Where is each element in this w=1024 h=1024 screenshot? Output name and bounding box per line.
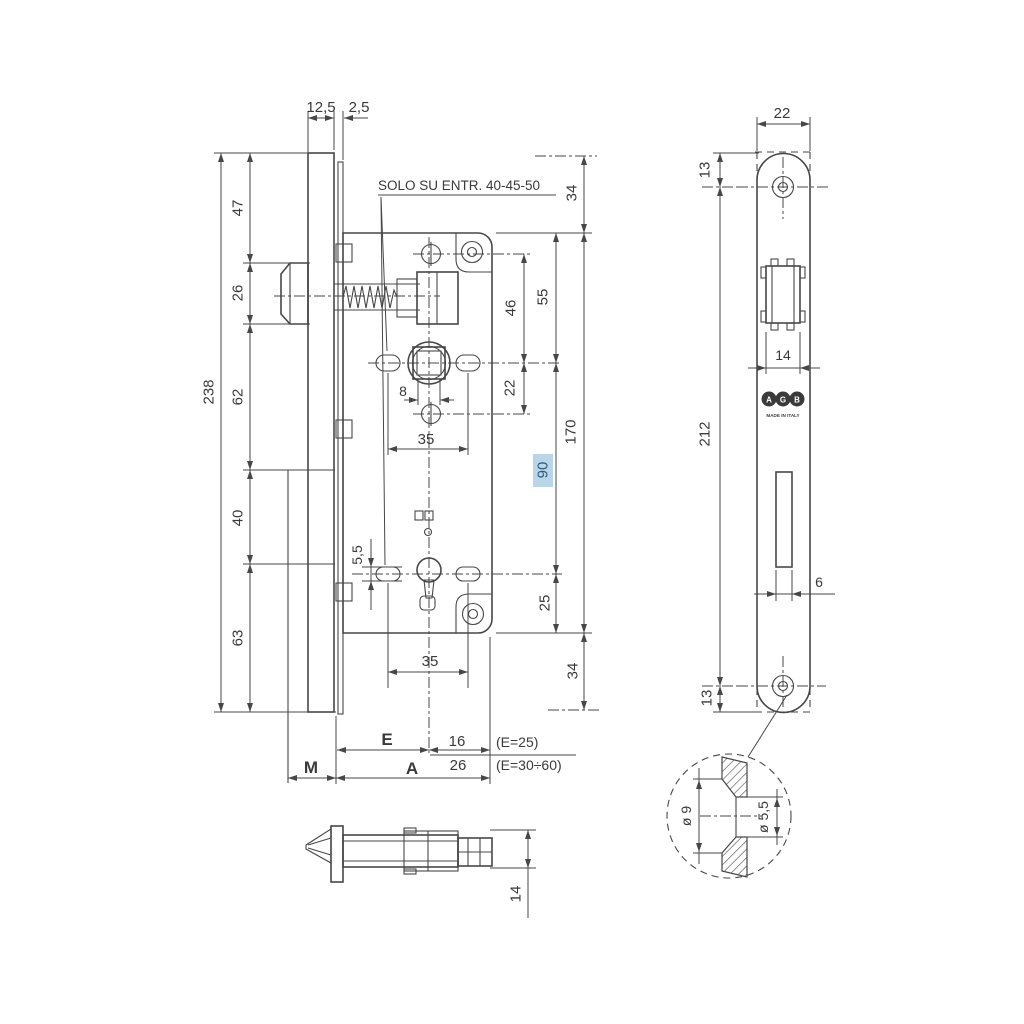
dim-detail-d5-5: ø 5,5	[747, 789, 783, 845]
dim-62-label: 62	[230, 389, 247, 406]
latch-side-view: 14	[306, 826, 536, 918]
dim-width-22: 22	[757, 105, 810, 151]
dim-slot-6-label: 6	[815, 574, 823, 590]
technical-drawing-page: 12,5 2,5 238 47 26 62 40 63	[0, 0, 1024, 1024]
dim-34-top-label: 34	[564, 185, 581, 202]
faceplate-square-corner-option	[755, 152, 812, 712]
latch-tip	[306, 829, 331, 863]
stamp-glyph	[415, 511, 433, 536]
latch-bolt-front	[274, 263, 458, 324]
faceplate-view: 14 A G B MADE IN ITALY 6	[697, 105, 836, 713]
dim-40-label: 40	[230, 510, 247, 527]
dim-35-bottom: 35	[388, 583, 468, 688]
dim-212-label: 212	[697, 421, 714, 446]
dim-35-bottom-label: 35	[422, 653, 439, 670]
faceplate-outline	[757, 154, 810, 713]
dim-47-label: 47	[230, 200, 247, 217]
dim-46-label: 46	[503, 300, 520, 317]
dim-34-bottom-label: 34	[565, 663, 582, 680]
dim-E-label: E	[381, 730, 392, 749]
dim-d9-label: ø 9	[678, 806, 694, 826]
dim-left-chains: 238 47 26 62 40 63	[201, 153, 337, 712]
dim-width-22-label: 22	[774, 105, 791, 122]
dim-faceplate-left-chain: 13 212 13	[697, 153, 760, 712]
dim-square-8: 8	[399, 379, 454, 405]
countersink-detail: ø 9 ø 5,5	[667, 695, 791, 878]
faceplate-edge	[308, 153, 334, 712]
dim-d5-5-label: ø 5,5	[755, 801, 771, 833]
lock-technical-drawing: 12,5 2,5 238 47 26 62 40 63	[0, 0, 1024, 1024]
dim-25-label: 25	[537, 595, 554, 612]
entry-note-label: SOLO SU ENTR. 40-45-50	[378, 178, 540, 193]
corner-hole-top-inner	[468, 248, 477, 257]
faceplate-top-screw-hole	[737, 157, 830, 219]
handle-zone-box	[288, 470, 335, 783]
corner-hole-top	[462, 242, 483, 263]
latch-clip	[404, 831, 458, 871]
made-in-italy-label: MADE IN ITALY	[766, 413, 799, 418]
dim-8-label: 8	[399, 383, 407, 399]
dim-22-label: 22	[502, 380, 519, 397]
faceplate-latch-cutout	[761, 259, 805, 330]
note-e3060-label: (E=30÷60)	[496, 757, 562, 773]
latch-body	[343, 835, 458, 867]
section-hatch-top	[722, 757, 747, 797]
dim-top-offsets: 12,5 2,5	[306, 99, 369, 160]
logo-letter-a: A	[766, 396, 772, 405]
dim-13-bottom-label: 13	[699, 690, 716, 707]
brand-logo: A G B MADE IN ITALY	[762, 392, 805, 419]
faceplate-bottom-screw-hole	[737, 656, 826, 708]
dim-26-label: 26	[230, 285, 247, 302]
dim-12-5-label: 12,5	[306, 99, 335, 116]
logo-letter-b: B	[794, 396, 800, 405]
dim-right-chains: 46 22 55 90 25 34 170 34	[496, 156, 592, 710]
fixing-oval-holes	[376, 355, 480, 581]
dim-slot-6: 6	[754, 570, 835, 601]
detail-leader-line	[748, 695, 787, 757]
dim-A-label: A	[406, 759, 418, 778]
dim-cutout-14-label: 14	[775, 347, 791, 363]
dim-55-label: 55	[535, 289, 552, 306]
assembly-screw-holes	[413, 242, 533, 426]
dim-90-label: 90	[535, 462, 552, 479]
section-hatch-bottom	[722, 837, 747, 877]
dim-63-label: 63	[230, 630, 247, 647]
dim-35-top-label: 35	[418, 431, 435, 448]
deadbolt-slot	[776, 472, 792, 567]
dim-latch-14-label: 14	[508, 886, 525, 903]
dim-5-5-label: 5,5	[349, 545, 365, 565]
front-view: 12,5 2,5 238 47 26 62 40 63	[201, 99, 603, 784]
logo-letter-g: G	[780, 396, 786, 405]
dim-13-top-label: 13	[697, 162, 714, 179]
note-e25-label: (E=25)	[496, 734, 538, 750]
dim-16-label: 16	[449, 733, 466, 750]
dim-170-label: 170	[563, 419, 580, 444]
dim-238-label: 238	[201, 379, 218, 404]
corner-hole-bottom-inner	[469, 610, 478, 619]
latch-flange	[331, 826, 343, 882]
latch-spring	[343, 286, 397, 308]
dim-M-label: M	[304, 758, 318, 777]
corner-hole-bottom	[463, 604, 484, 625]
dim-latch-14: 14	[490, 830, 536, 918]
dim-26-under-label: 26	[450, 757, 467, 774]
dim-2-5-label: 2,5	[349, 99, 370, 116]
corner-bracket-bottom	[456, 594, 492, 633]
